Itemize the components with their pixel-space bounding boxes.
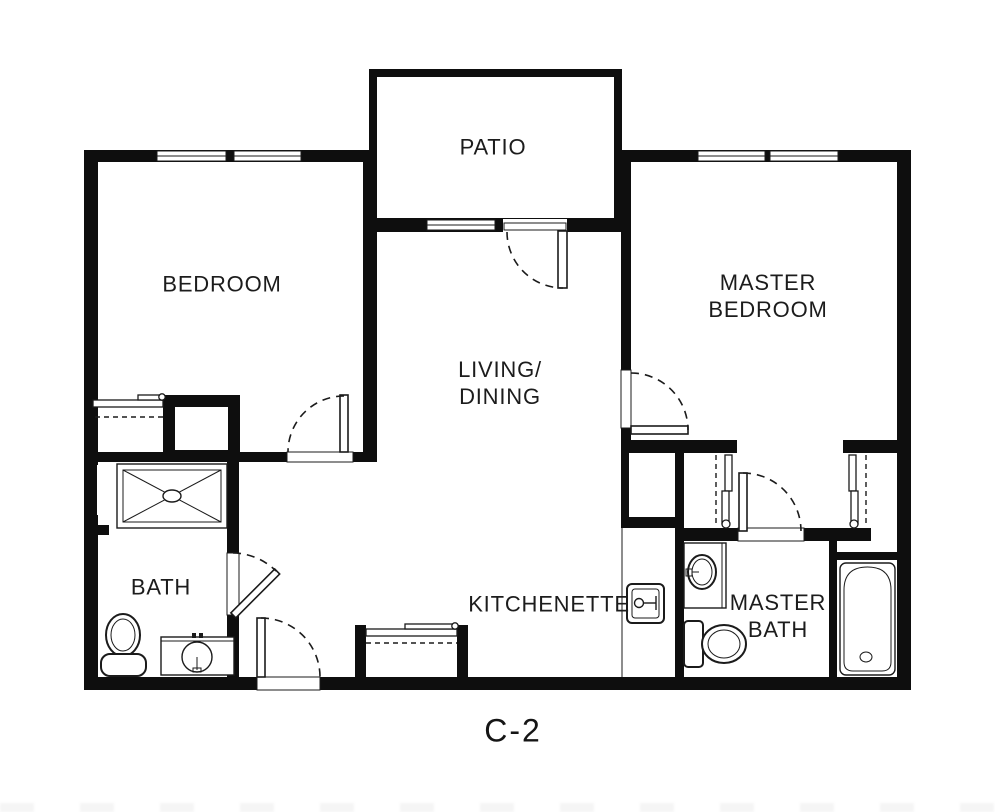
- utility-closet-bottom-wall: [621, 517, 684, 528]
- living-master-wall-upper: [621, 162, 631, 370]
- entry-door-opening: [257, 677, 320, 690]
- bottom-wall: [84, 677, 911, 690]
- living-closet-left-stub: [355, 625, 366, 678]
- master-bath-door: [739, 473, 801, 531]
- room-label-bedroom: BEDROOM: [162, 271, 281, 298]
- wall-niche: [97, 465, 102, 515]
- room-label-kitchenette: KITCHENETTE: [468, 591, 630, 618]
- hall-top-wall-right: [843, 440, 911, 453]
- bedroom-living-wall: [363, 150, 377, 462]
- hall-closet-right: [849, 455, 866, 528]
- bedroom-window-1: [157, 151, 226, 161]
- plan-code-label: C-2: [484, 713, 542, 750]
- shower-pan: [117, 464, 227, 528]
- patio-slider-window: [427, 220, 495, 230]
- chase-interior: [175, 407, 228, 450]
- living-closet-right-stub: [457, 625, 468, 678]
- room-label-patio: PATIO: [460, 134, 527, 161]
- master-bedroom-window-2: [770, 151, 838, 161]
- master-bath-door-opening: [738, 528, 804, 541]
- room-label-master-bath: MASTER BATH: [730, 589, 826, 643]
- scan-artifact: [0, 803, 995, 812]
- utility-closet-left-wall: [621, 440, 629, 528]
- tub-nook-top-wall: [837, 552, 911, 560]
- patio-door-slab: [504, 223, 566, 230]
- master-bedroom-door: [631, 373, 688, 434]
- room-label-living-dining: LIVING/ DINING: [458, 356, 542, 410]
- master-bedroom-window-1: [698, 151, 765, 161]
- bedroom-door: [288, 395, 348, 452]
- bedroom-door-opening: [287, 452, 353, 462]
- patio-door: [507, 231, 567, 288]
- master-vanity-sink: [684, 543, 726, 608]
- hall-closet-left: [716, 455, 732, 528]
- bedroom-window-2: [234, 151, 301, 161]
- kitchen-masterbath-wall: [675, 440, 684, 690]
- room-label-master-bedroom: MASTER BEDROOM: [708, 269, 827, 323]
- entry-door: [257, 618, 320, 677]
- bath-toilet: [101, 614, 146, 676]
- left-wall: [84, 150, 98, 690]
- bathtub: [840, 563, 895, 675]
- room-label-bath: BATH: [131, 574, 191, 601]
- patio-top-wall: [369, 69, 622, 77]
- bedroom-closet: [93, 394, 165, 417]
- kitchenette-sink: [627, 584, 664, 623]
- bath-vanity-sink: [161, 633, 234, 675]
- patio-bottom-wall: [369, 218, 631, 232]
- master-bedroom-door-opening: [621, 370, 631, 428]
- floor-plan-page: PATIO BEDROOM LIVING/ DINING MASTER BEDR…: [0, 0, 995, 812]
- shower-wall-stub: [84, 525, 109, 535]
- fixtures: [101, 464, 895, 677]
- living-coat-closet: [366, 623, 458, 643]
- patio-right-wall: [614, 69, 622, 230]
- tub-nook-left-wall: [829, 540, 837, 677]
- top-wall-left: [84, 150, 377, 162]
- right-wall: [897, 150, 911, 690]
